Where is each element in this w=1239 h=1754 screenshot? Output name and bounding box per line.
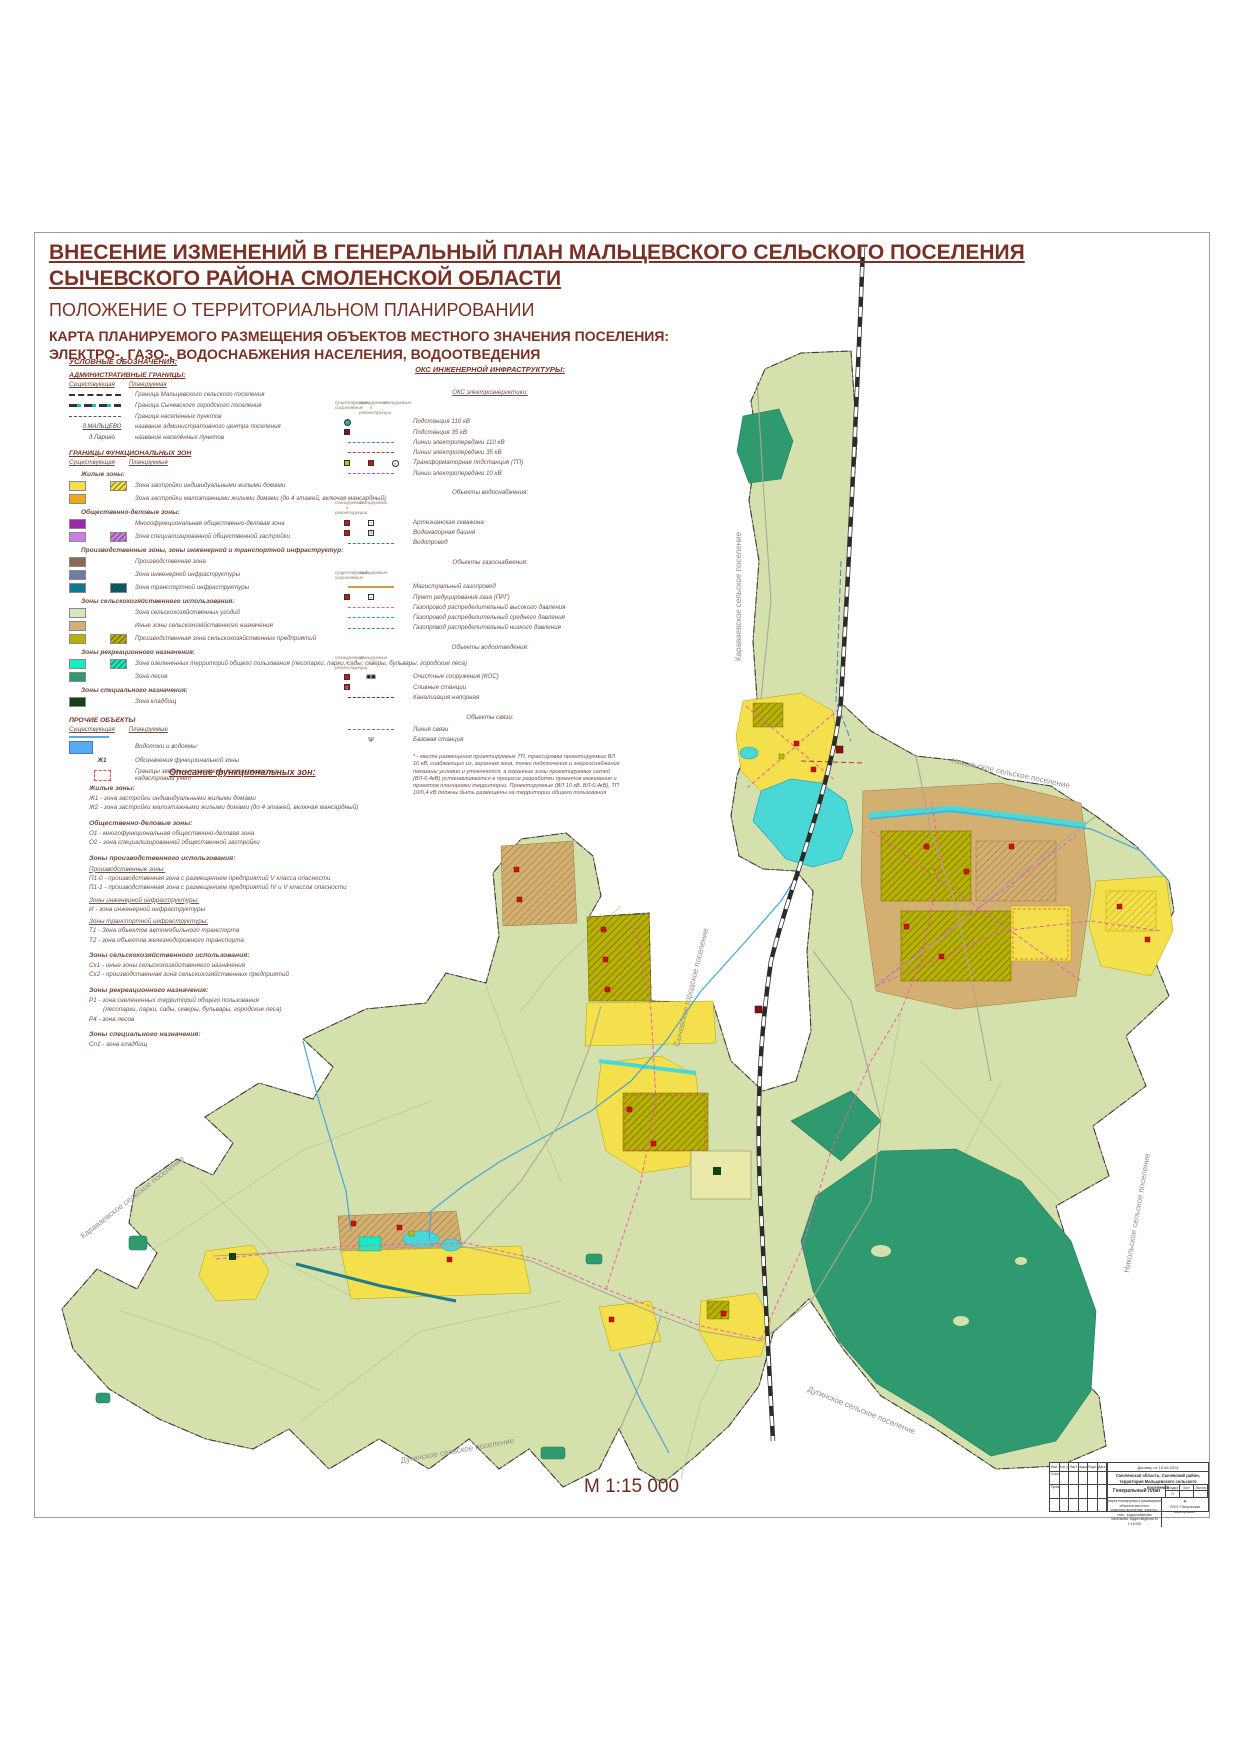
legend-label: Зона застройки индивидуальными жилыми до… [135, 482, 285, 490]
map-title-line1: КАРТА ПЛАНИРУЕМОГО РАЗМЕЩЕНИЯ ОБЪЕКТОВ М… [49, 327, 1025, 345]
microcol-planned: планируемые [359, 501, 383, 516]
desc-item: Ж2 - зона застройки малоэтажными жилыми … [89, 803, 529, 812]
eng-label: Водонапорная башня [413, 529, 475, 537]
eng-label: Канализация напорная [413, 694, 479, 702]
map-sheet-page: Караваевское сельское поселение Никольск… [0, 0, 1239, 1754]
tp-symbol-icon: т [392, 460, 399, 467]
document-subtitle: ПОЛОЖЕНИЕ О ТЕРРИТОРИАЛЬНОМ ПЛАНИРОВАНИИ [49, 300, 1025, 321]
microcol-reconstruction: планируемые к реконструкции [335, 501, 359, 516]
stamp-doc-name: Генеральный план [1108, 1485, 1166, 1497]
eng-label: Линия связи [413, 726, 448, 734]
comms-line-icon [348, 729, 394, 730]
stamp-row-label: Составил [1050, 1472, 1060, 1484]
stamp-organization: ✦ ООО «Творческая мастерская» [1162, 1498, 1208, 1527]
desc-item: Сх2 - производственная зона сельскохозяй… [89, 970, 529, 979]
swatch-lowrise [69, 494, 86, 504]
pressure-sewer-icon [348, 697, 394, 698]
waterbody-swatch [69, 741, 93, 754]
water-tower-icon: ◎ [368, 530, 374, 536]
power-line-35-icon [348, 452, 394, 453]
eng-section-comms: Объекты связи: [466, 714, 513, 721]
stamp-col: Подп. [1088, 1463, 1098, 1471]
stamp-content-line: значения поселения: электро-, газо-, вод… [1108, 1508, 1161, 1517]
desc-subgroup: Зоны инженерной инфраструктуры: [89, 897, 529, 904]
desc-group: Зоны специального назначения: [89, 1031, 529, 1038]
stamp-content-line: населения, водоотведения М 1:15 000 [1108, 1517, 1161, 1526]
stamp-col: Дата [1098, 1463, 1108, 1471]
microcol-planned: планируемые [359, 571, 383, 581]
legend-label: Зона сельскохозяйственных угодий [135, 609, 240, 617]
swatch-agri-prod [69, 634, 86, 644]
legend-label: название населённых пунктов [135, 434, 224, 442]
desc-item: Сх1 - иные зоны сельскохозяйственного на… [89, 961, 529, 970]
microcol-planned: планируемые [383, 401, 407, 416]
legend-label: Граница Сычевского городского поселения [135, 402, 262, 410]
gas-low-pressure-icon [348, 628, 394, 629]
legend-label: Зона кладбищ [135, 698, 176, 706]
gas-medium-pressure-icon [348, 617, 394, 618]
eng-label: Газопровод распределительный среднего да… [413, 614, 565, 622]
eng-label: Базовая станция [413, 736, 463, 744]
gas-main-icon [348, 586, 394, 588]
eng-section-water: Объекты водоснабжения: [452, 489, 528, 496]
swatch-cemetery [69, 697, 86, 707]
stamp-contract: Договор от 10.06.2024 [1108, 1463, 1208, 1472]
map-scale: М 1:15 000 [584, 1476, 679, 1498]
legend-label: Зона лесов [135, 673, 167, 681]
desc-subgroup: Зоны транспортной инфраструктуры: [89, 918, 529, 925]
artesian-well-planned-icon [344, 520, 350, 526]
treatment-planned-icon [344, 674, 350, 680]
eng-label: Подстанция 110 кВ [413, 418, 470, 426]
stage-value: П [1166, 1491, 1180, 1497]
eng-label: Подстанция 35 кВ [413, 429, 467, 437]
swatch-transport [69, 583, 86, 593]
label-karavaevskoe-north: Караваевское сельское поселение [734, 531, 743, 661]
eng-section-sewage: Объекты водоотведения: [452, 644, 529, 651]
col-planned: Планируемые [129, 727, 168, 733]
document-title-line2: СЫЧЕВСКОГО РАЙОНА СМОЛЕНСКОЙ ОБЛАСТИ [49, 266, 1025, 292]
swatch-forest [69, 672, 86, 682]
swatch-farmland [69, 608, 86, 618]
stamp-location-line1: Смоленская область, Сычевский район, [1108, 1473, 1208, 1479]
boundary-locality-line-icon [69, 416, 121, 417]
legend-label: Многофункциональная общественно-деловая … [135, 520, 285, 528]
legend-label: Зона транспортной инфраструктуры [135, 584, 249, 592]
organization-name: ООО «Творческая мастерская» [1162, 1505, 1208, 1514]
stamp-location: Смоленская область, Сычевский район, тер… [1108, 1472, 1208, 1485]
desc-group: Общественно-деловые зоны: [89, 820, 529, 827]
desc-item: О1 - многофункциональная общественно-дел… [89, 829, 529, 838]
microcol-reconstruction: планируемые к реконструкции [335, 656, 359, 671]
sheet-header: Лист [1180, 1485, 1194, 1490]
desc-item: Р1 - зона озелененных территорий общего … [89, 996, 529, 1005]
east-settlement-cluster [1089, 876, 1173, 976]
desc-item: Т2 - зона объектов железнодорожного тран… [89, 936, 529, 945]
stamp-col: Лист [1069, 1463, 1079, 1471]
label-nikolskoe-east: Никольское сельское поселение [1122, 1152, 1152, 1273]
col-planned: Планируемая [129, 382, 167, 388]
tp-planned-icon [368, 460, 374, 466]
artesian-well-icon: ○ [368, 520, 374, 526]
legend-label: Водотоки и водоемы [135, 743, 197, 751]
water-pipe-icon [348, 543, 394, 544]
stamp-col: №док. [1079, 1463, 1089, 1471]
desc-item: Ж1 - зона застройки индивидуальными жилы… [89, 794, 529, 803]
col-existing: Существующая [69, 382, 115, 388]
treatment-icon: ▣▣ [366, 674, 375, 680]
stage-header: Стадия [1166, 1485, 1180, 1490]
desc-group: Зоны рекреационного назначения: [89, 987, 529, 994]
cemetery-site [229, 1253, 236, 1260]
substation-110-icon [344, 419, 351, 426]
zones-description: Описание функциональных зон: Жилые зоны:… [89, 767, 529, 1050]
eng-label: Линии электропередачи 35 кВ [413, 449, 502, 457]
desc-item: Т1 - Зона объектов автомобильного трансп… [89, 926, 529, 935]
eng-label: Артезианская скважина [413, 519, 484, 527]
locality-name-sample: д.Ларино [89, 435, 115, 441]
eng-label: Линии электропередачи 110 кВ [413, 439, 505, 447]
desc-item: П1-0 - производственная зона с размещени… [89, 874, 529, 883]
eng-label: Водопровод [413, 539, 448, 547]
watercourse-line-icon [69, 736, 109, 738]
eng-label: Очистные сооружения (КОС) [413, 673, 499, 681]
microcol-reconstruction: планируемые к реконструкции [359, 401, 383, 416]
stamp-row-label: Проверил [1050, 1485, 1060, 1497]
stamp-stage-table: Стадия Лист Листов П [1166, 1485, 1208, 1497]
eng-section-electric: ОКС электроэнергетики: [452, 389, 528, 396]
desc-group: Зоны сельскохозяйственного использования… [89, 952, 529, 959]
drain-station-icon: С [344, 684, 350, 690]
eng-label: Линии электропередачи 10 кВ [413, 470, 502, 478]
swatch-business [69, 519, 86, 529]
swatch-residential [69, 481, 86, 491]
sheets-header: Листов [1194, 1485, 1208, 1490]
zone-code-sample: Ж1 [98, 758, 107, 764]
desc-item: Р4 - зона лесов [89, 1015, 529, 1024]
eng-legend-title: ОКС ИНЖЕНЕРНОЙ ИНФРАСТРУКТУРЫ: [415, 365, 565, 374]
power-line-110-icon [348, 442, 394, 443]
pond [740, 747, 758, 759]
sheet-frame: Караваевское сельское поселение Никольск… [34, 232, 1210, 1518]
legend-label: Зона специализированной общественной зас… [135, 533, 290, 541]
stamp-col: Изм. [1050, 1463, 1060, 1471]
engineering-legend-panel: ОКС ИНЖЕНЕРНОЙ ИНФРАСТРУКТУРЫ: ОКС элект… [335, 359, 645, 798]
legend-label: Производственная зона [135, 558, 206, 566]
swatch-transport-planned [110, 583, 127, 593]
desc-item: О2 - зона специализированной общественно… [89, 838, 529, 847]
legend-label: название административного центра поселе… [135, 423, 281, 431]
boundary-town-line-icon [69, 404, 121, 407]
legend-label: Обозначения функциональной зоны [135, 757, 239, 765]
microcol-planned: планируемые [359, 656, 383, 671]
eng-label: Газопровод распределительный высокого да… [413, 604, 566, 612]
swatch-agri-other [69, 621, 86, 631]
legend-label: Граница Мальцевского сельского поселения [135, 391, 265, 399]
col-existing: Существующая [69, 460, 115, 466]
swatch-industrial [69, 557, 86, 567]
water-tower-planned-icon [344, 530, 350, 536]
eng-label: Магистральный газопровод [413, 583, 496, 591]
base-station-icon: Ψ [368, 737, 374, 744]
microcol-existing: существующие, сохраняемые [335, 571, 359, 581]
eng-label: Газопровод распределительный низкого дав… [413, 624, 561, 632]
tp-existing-icon [344, 460, 350, 466]
stamp-content-line: Карта планируемого размещения объектов м… [1108, 1499, 1161, 1508]
stamp-col: Кол.уч [1060, 1463, 1070, 1471]
legend-label: Граница населенных пунктов [135, 413, 222, 421]
swatch-recreation-planned [110, 659, 127, 669]
desc-item: П1-1 - производственная зона с размещени… [89, 883, 529, 892]
eng-label: Пункт редуцирования газа (ПРГ) [413, 594, 510, 602]
desc-group: Жилые зоны: [89, 785, 529, 792]
north-settlement [736, 693, 837, 791]
title-block: Изм. Кол.уч Лист №док. Подп. Дата Состав… [1049, 1462, 1209, 1512]
gas-station-icon: ▪ [368, 594, 374, 600]
zones-description-title: Описание функциональных зон: [169, 767, 529, 777]
desc-subgroup: Производственные зоны: [89, 866, 529, 873]
microcol-existing: существующие, сохраняемые [335, 401, 359, 416]
legend-label: Зона инженерной инфраструктуры [135, 571, 240, 579]
admin-center-sample: д.МАЛЬЦЕВО [83, 424, 122, 430]
desc-group: Зоны производственного использования: [89, 855, 529, 862]
swatch-public-planned [110, 532, 127, 542]
gas-high-pressure-icon [348, 607, 394, 608]
swatch-public [69, 532, 86, 542]
swatch-engineering [69, 570, 86, 580]
gas-station-planned-icon [344, 594, 350, 600]
swatch-residential-planned [110, 481, 127, 491]
swatch-recreation [69, 659, 86, 669]
col-planned: Планируемые [129, 460, 168, 466]
stamp-sheet-content: Карта планируемого размещения объектов м… [1108, 1498, 1162, 1527]
title-block-left-table: Изм. Кол.уч Лист №док. Подп. Дата Состав… [1050, 1463, 1108, 1511]
desc-item: И - зона инженерной инфраструктуры [89, 905, 529, 914]
boundary-settlement-line-icon [69, 394, 121, 396]
legend-label: Иные зоны сельскохозяйственного назначен… [135, 622, 273, 630]
desc-item: (лесопарки, парки, сады, скверы, бульвар… [103, 1005, 529, 1014]
power-line-10-icon [348, 473, 394, 474]
eng-label: Трансформаторная подстанция (ТП) [413, 459, 523, 467]
eng-section-gas: Объекты газоснабжения: [452, 559, 527, 566]
legend-label: Производственная зона сельскохозяйственн… [135, 635, 316, 643]
document-title-line1: ВНЕСЕНИЕ ИЗМЕНЕНИЙ В ГЕНЕРАЛЬНЫЙ ПЛАН МА… [49, 240, 1025, 266]
substation-35-icon [344, 429, 350, 435]
sheet-header: ВНЕСЕНИЕ ИЗМЕНЕНИЙ В ГЕНЕРАЛЬНЫЙ ПЛАН МА… [49, 240, 1025, 363]
eng-label: Сливные станции [413, 684, 466, 692]
col-existing: Существующая [69, 727, 115, 733]
swatch-agri-prod-planned [110, 634, 127, 644]
desc-item: Сп1 - зона кладбищ [89, 1040, 529, 1049]
